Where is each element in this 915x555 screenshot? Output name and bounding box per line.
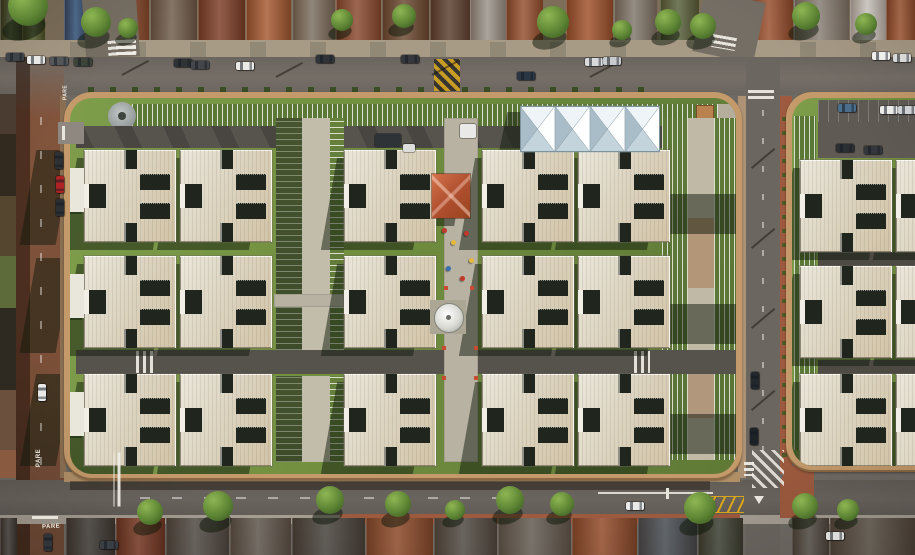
parking-stalls [714,118,736,460]
driveway [430,42,446,57]
parking-stalls [276,118,302,350]
courtyard-notch [578,184,600,208]
crosswalk [748,90,774,99]
lane-line [598,492,713,494]
house-roof [506,0,543,40]
road-stop-marking: PARE [63,85,68,101]
apartment-building [578,374,670,466]
stairwell-notch [124,150,137,169]
house-roof [0,0,23,40]
stairwell-notch [618,223,631,242]
courtyard-notch [482,408,504,432]
edge-building [0,94,16,134]
main-compound [70,98,736,474]
apartment-building [896,374,915,466]
courtyard-recess [634,280,664,296]
courtyard-recess [634,309,664,325]
stairwell-notch [384,447,397,466]
courtyard-recess [236,174,266,190]
courtyard-recess [140,398,170,414]
courtyard-recess [236,398,266,414]
house-roof [150,0,197,40]
stairwell-notch [618,447,631,466]
road-stop-marking: PARE [36,449,42,467]
stairwell-notch [124,256,137,275]
courtyard-recess [634,398,664,414]
crosswalk [114,453,121,507]
courtyard-recess [538,309,568,325]
apartment-building [800,160,892,252]
entrance-block [70,168,84,212]
house-roof [794,0,849,40]
stairwell-notch [522,223,535,242]
playground-equipment [442,228,447,233]
apartment-building [896,160,915,252]
house-roof [566,0,613,40]
courtyard-recess [856,184,886,200]
courtyard-notch [84,290,106,314]
apartment-building [344,374,436,466]
courtyard-recess [400,280,430,296]
stairwell-notch [618,374,631,393]
courtyard-recess [538,280,568,296]
tactile-paving [442,376,446,380]
driveway [800,42,816,57]
courtyard-recess [400,203,430,219]
stairwell-notch [220,329,233,348]
stairwell-notch [124,374,137,393]
bottom-houses-block [0,518,915,555]
courtyard-recess [400,174,430,190]
courtyard-notch [578,408,600,432]
courtyard-recess [538,398,568,414]
courtyard-recess [400,427,430,443]
courtyard-notch [896,408,915,432]
house-roof [886,0,915,40]
yield-triangle-marking [754,496,764,504]
apartment-building [344,256,436,348]
house-roof [230,518,291,555]
stairwell-notch [840,339,853,358]
apartment-building [84,374,176,466]
water-tank-cap [446,315,451,320]
courtyard-notch [578,290,600,314]
courtyard-notch [800,408,822,432]
house-roof [246,0,291,40]
house-roof [336,0,381,40]
right-compound [792,98,915,466]
stairwell-notch [384,374,397,393]
entrance-block [70,274,84,318]
pole-shadow [590,62,617,78]
courtyard-recess [140,309,170,325]
house-roof [166,518,229,555]
car [836,144,854,152]
courtyard-notch [344,290,366,314]
tactile-paving [444,286,448,290]
edge-building [0,196,16,256]
carport-shade [662,414,736,454]
tactile-paving [474,376,478,380]
car [838,104,856,112]
courtyard-recess [538,427,568,443]
stairwell-notch [220,223,233,242]
apartment-building [180,374,272,466]
house-roof [850,0,887,40]
lane-arrow [666,488,669,499]
carport-shade [662,194,736,234]
apartment-building [482,150,574,242]
apartment-building [800,266,892,358]
tactile-paving [470,286,474,290]
courtyard-recess [400,309,430,325]
driveway [490,42,506,57]
apartment-building [180,256,272,348]
courtyard-recess [236,280,266,296]
courtyard-notch [896,300,915,324]
courtyard-recess [634,203,664,219]
courtyard-recess [538,203,568,219]
courtyard-recess [634,427,664,443]
driveway [310,42,326,57]
courtyard-recess [634,174,664,190]
house-roof [116,518,165,555]
pole-shadow [276,62,303,78]
house-roof [22,0,45,40]
courtyard-notch [482,290,504,314]
parked-vehicle [460,124,476,138]
playground-equipment [451,240,456,245]
apartment-building [896,266,915,358]
courtyard-recess [236,427,266,443]
stairwell-notch [618,329,631,348]
house-roof [430,0,471,40]
playground-equipment [469,258,474,263]
stairwell-notch [220,256,233,275]
courtyard-notch [800,194,822,218]
house-roof [382,0,429,40]
house-roof [470,0,507,40]
edge-building [0,450,16,478]
carport-shade [662,304,736,344]
house-roof [66,518,115,555]
car [880,106,898,114]
stairwell-notch [220,150,233,169]
stairwell-notch [384,329,397,348]
wall-shadow [70,481,710,490]
center-dashes [140,497,500,499]
courtyard-recess [236,309,266,325]
house-roof [498,518,571,555]
car [864,146,882,154]
aerial-photo-stage: PARE PARE PARE [0,0,915,555]
speed-bump [434,59,460,91]
playground-equipment [446,266,451,271]
stairwell-notch [220,447,233,466]
driveway [70,42,86,57]
courtyard-recess [140,427,170,443]
courtyard-notch [84,184,106,208]
stairwell-notch [384,223,397,242]
entrance-block [70,392,84,436]
stairwell-notch [840,447,853,466]
courtyard-notch [344,408,366,432]
courtyard-recess [236,203,266,219]
stairwell-notch [522,374,535,393]
house-roof [0,518,17,555]
tactile-paving [474,346,478,350]
zebra-crosswalk [752,450,784,488]
driveway [370,42,386,57]
stairwell-notch [522,256,535,275]
parking-stalls [276,376,302,462]
stairwell-notch [840,233,853,252]
gate-bar [62,126,65,140]
stairwell-notch [124,447,137,466]
apartment-building [180,150,272,242]
courtyard-recess [856,290,886,306]
parked-vehicle [375,134,401,147]
apartment-building [578,150,670,242]
tactile-paving [442,346,446,350]
stairwell-notch [522,329,535,348]
edge-building [0,134,16,196]
stairwell-notch [384,256,397,275]
courtyard-notch [84,408,106,432]
driveway [860,42,876,57]
driveway [190,42,206,57]
house-roof [572,518,637,555]
house-roof [292,0,335,40]
courtyard-recess [140,280,170,296]
courtyard-recess [400,398,430,414]
apartment-building [344,150,436,242]
house-roof [366,518,433,555]
stairwell-notch [840,160,853,179]
courtyard-notch [180,290,202,314]
apartment-building [482,374,574,466]
courtyard-notch [896,194,915,218]
driveway [550,42,566,57]
apartment-building [578,256,670,348]
stairwell-notch [384,150,397,169]
house-roof [292,518,365,555]
courtyard-notch [180,408,202,432]
stairwell-notch [840,374,853,393]
edge-building [0,256,16,308]
stairwell-notch [522,447,535,466]
stairwell-notch [840,266,853,285]
house-roof [614,0,657,40]
courtyard-notch [344,184,366,208]
house-roof [434,518,497,555]
driveway [610,42,626,57]
apartment-building [84,150,176,242]
house-roof [638,518,697,555]
pole-shadow [122,60,149,76]
community-center-roof [432,174,470,218]
courtyard-recess [140,174,170,190]
stairwell-notch [220,374,233,393]
event-tent-roof [520,104,660,154]
house-roof [660,0,699,40]
parked-vehicle [403,144,415,152]
courtyard-notch [800,300,822,324]
driveway [250,42,266,57]
event-tent [520,104,660,154]
round-plaza-center [118,112,126,120]
crosswalk [744,462,754,476]
apartment-building [800,374,892,466]
edge-building [0,390,16,450]
courtyard-notch [482,184,504,208]
stairwell-notch [124,329,137,348]
crosswalk [116,40,136,56]
house-roof [198,0,245,40]
stairwell-notch [618,256,631,275]
playground-equipment [464,231,469,236]
apartment-building [482,256,574,348]
playground-equipment [460,276,465,281]
apartment-building [84,256,176,348]
car [898,106,915,114]
courtyard-notch [180,184,202,208]
edge-building [0,308,16,390]
house-roof [792,518,829,555]
house-roof [830,518,915,555]
courtyard-recess [856,319,886,335]
courtyard-recess [140,203,170,219]
house-roof [698,518,743,555]
courtyard-recess [856,427,886,443]
courtyard-recess [856,398,886,414]
courtyard-recess [856,213,886,229]
stairwell-notch [124,223,137,242]
yellow-chevron-marking [704,496,744,513]
courtyard-recess [538,174,568,190]
stop-bar [32,516,58,519]
road-stop-marking: PARE [42,524,61,531]
